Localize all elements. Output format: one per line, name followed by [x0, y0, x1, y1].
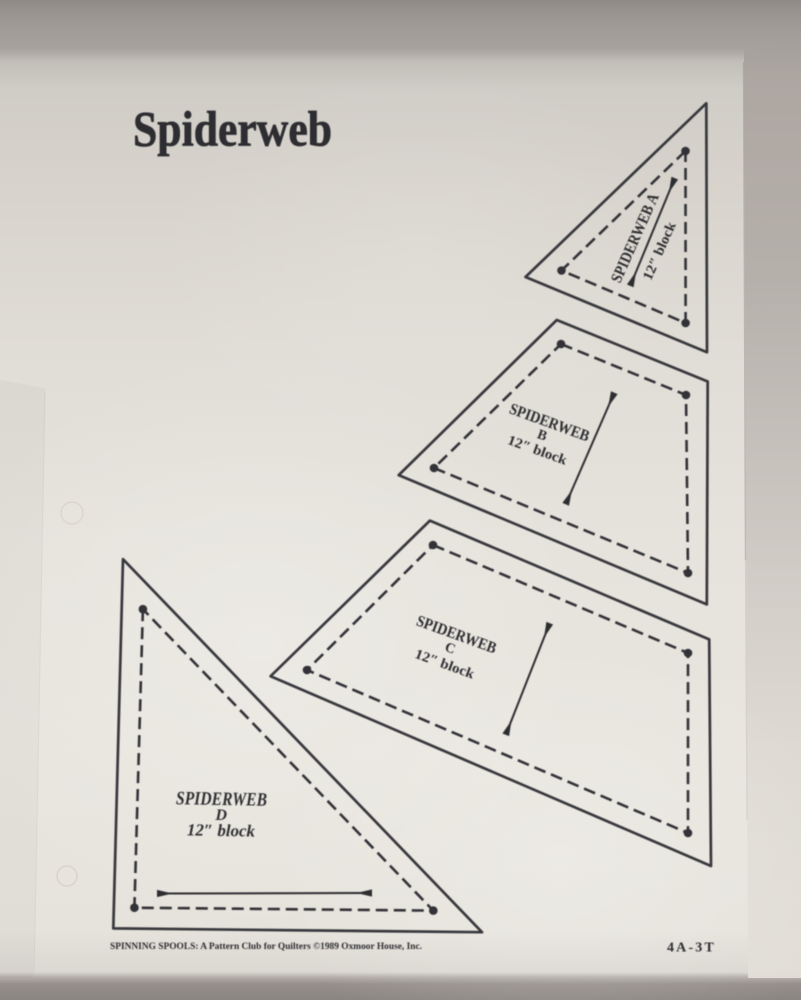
svg-text:SPINNING SPOOLS: A Pattern Clu: SPINNING SPOOLS: A Pattern Club for Quil… — [110, 941, 422, 952]
svg-text:Spiderweb: Spiderweb — [133, 101, 332, 157]
svg-text:12″ block: 12″ block — [187, 820, 256, 840]
svg-text:4A-3T: 4A-3T — [667, 941, 716, 956]
